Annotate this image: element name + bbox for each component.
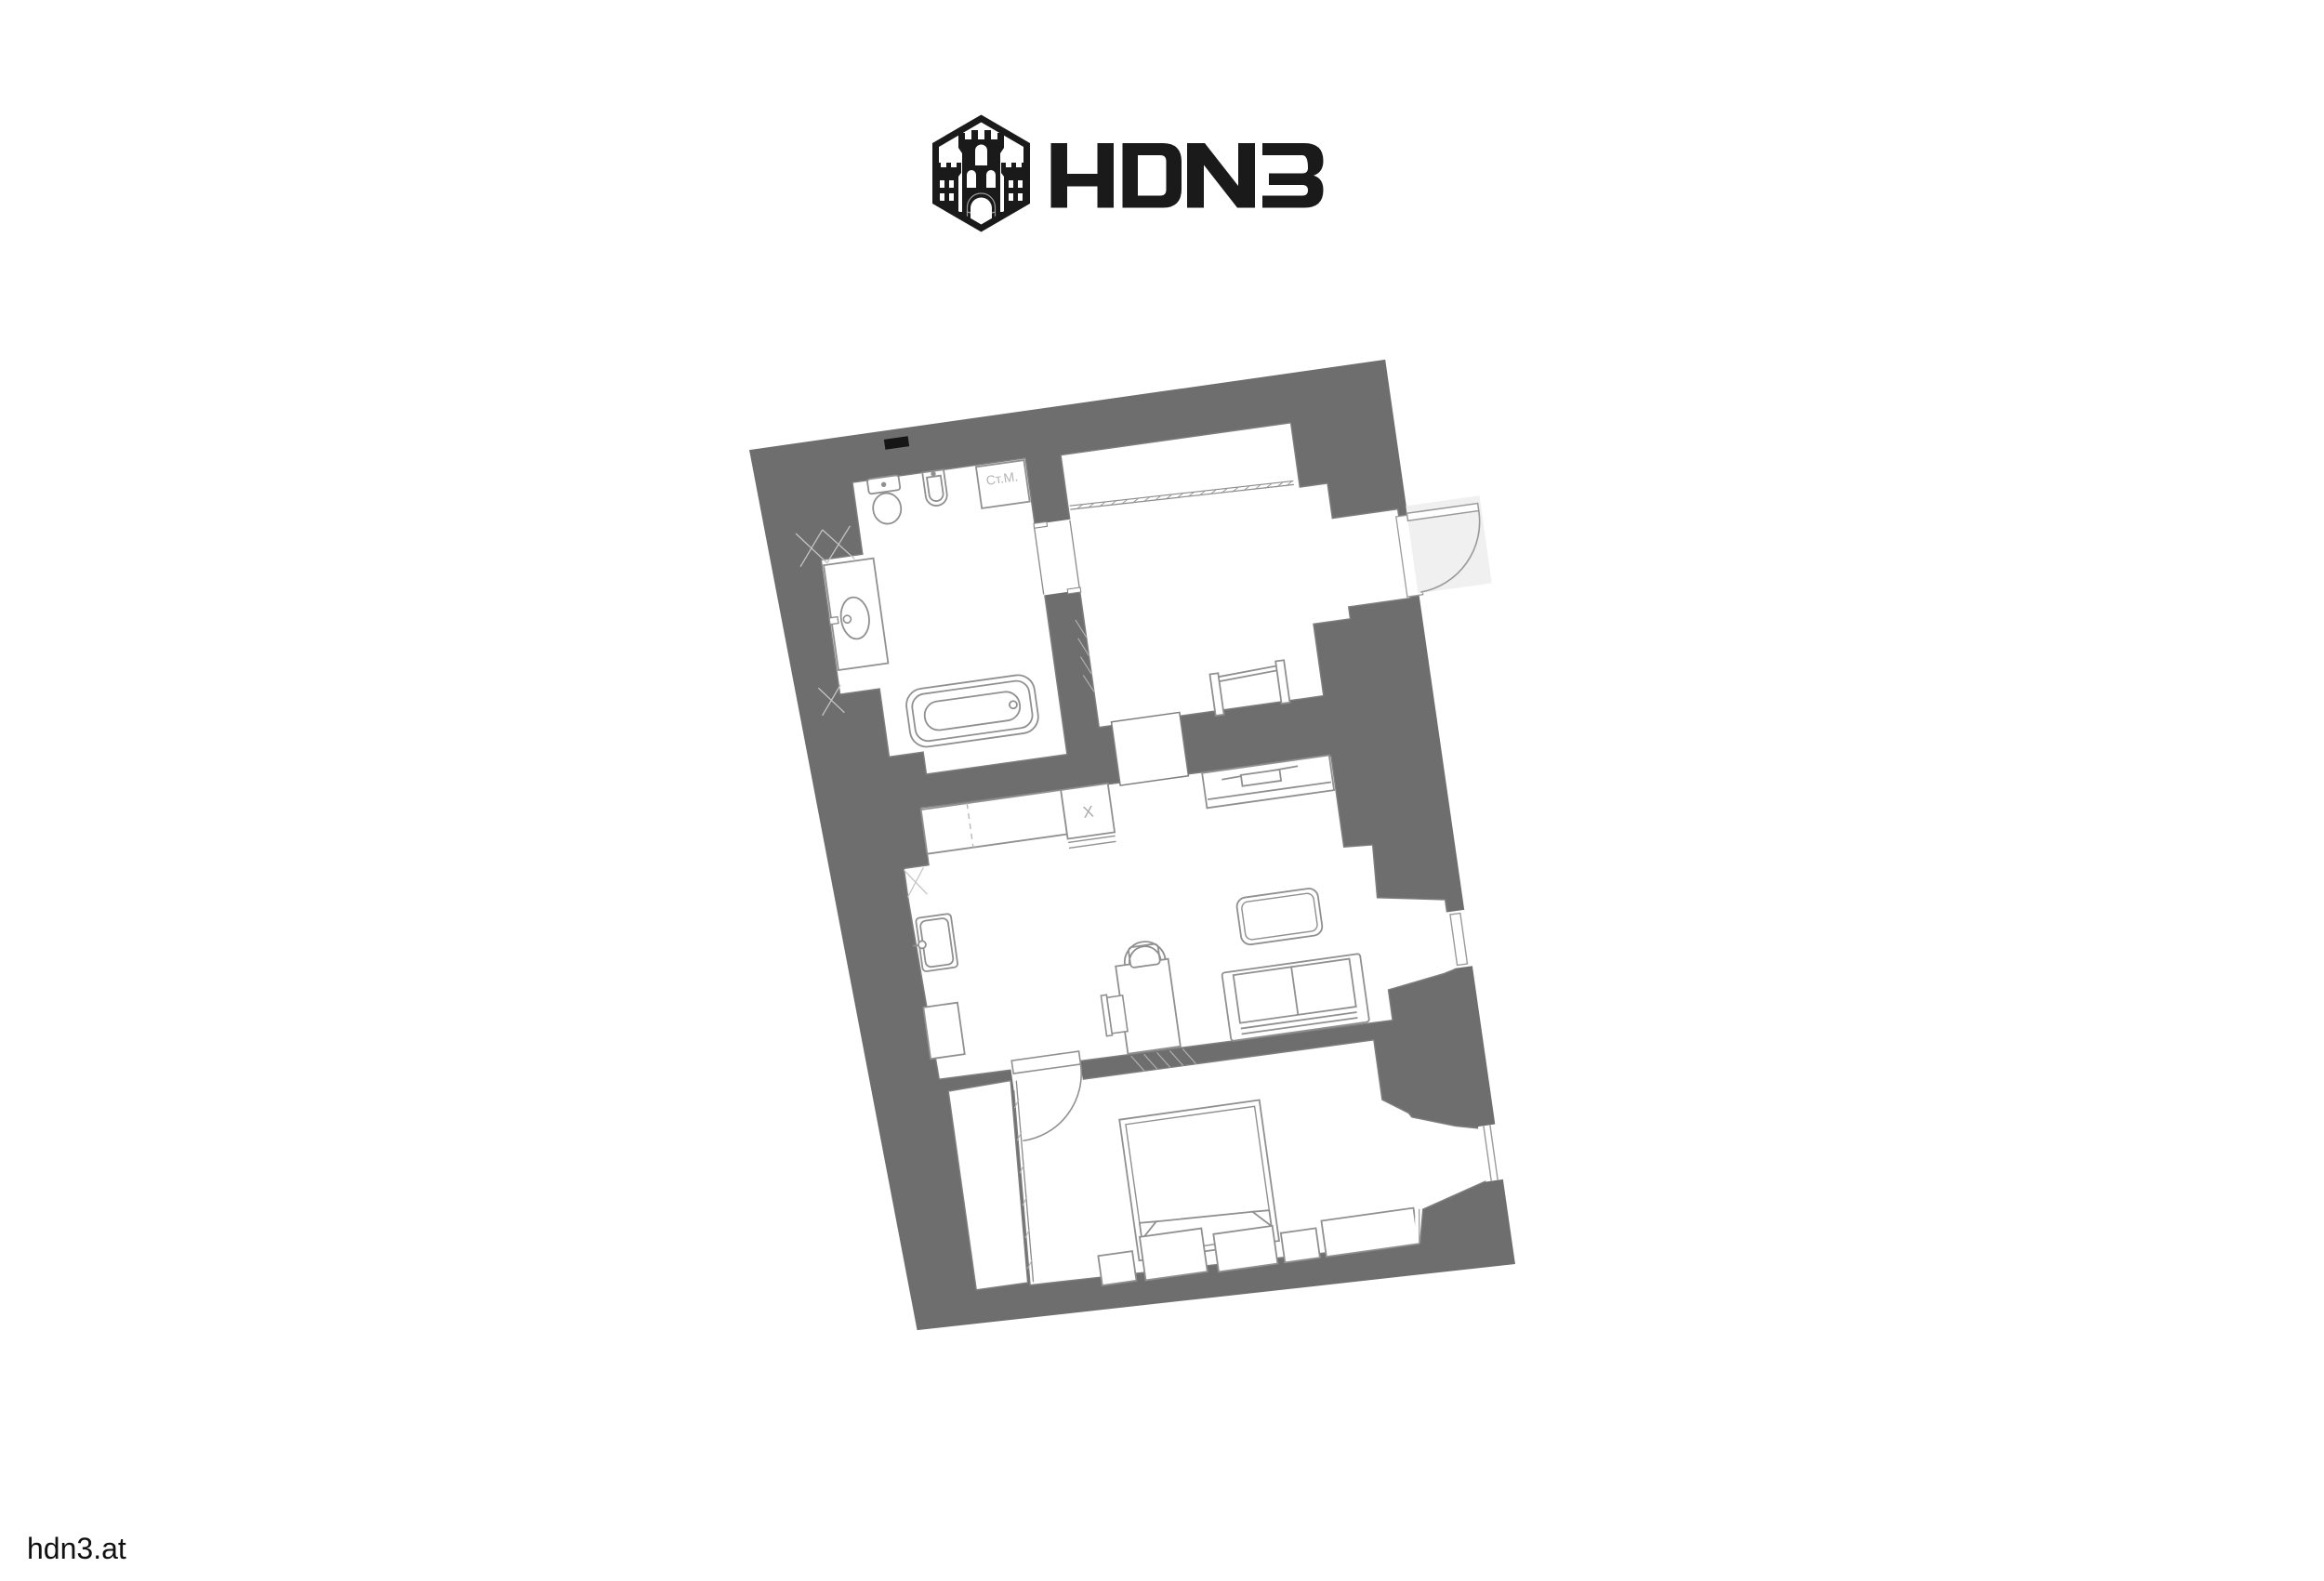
svg-text:hdn3.at: hdn3.at — [27, 1532, 126, 1565]
